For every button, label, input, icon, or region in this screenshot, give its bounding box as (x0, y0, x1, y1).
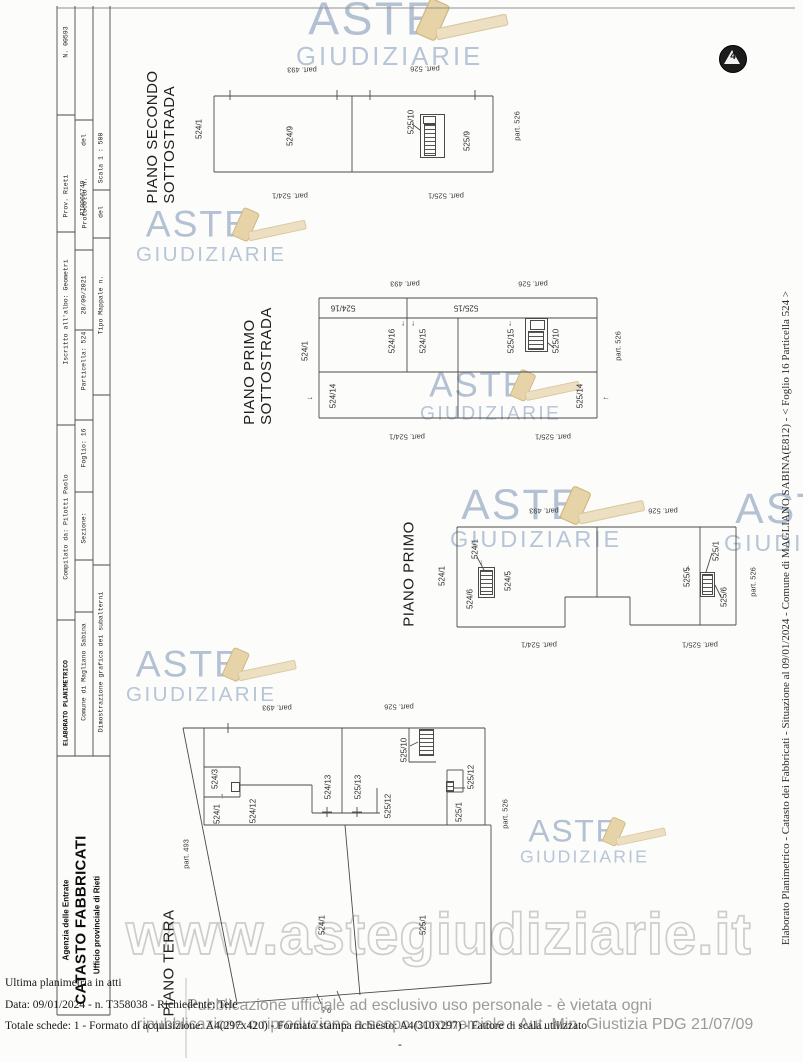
publication-notice-line1: Pubblicazione ufficiale ad esclusivo uso… (187, 997, 652, 1015)
footer-dash: - (398, 1039, 402, 1051)
overlay-layer: 4 Elaborato Planimetrico - Catasto dei F… (0, 0, 803, 1062)
side-annotation: Elaborato Planimetrico - Catasto dei Fab… (780, 291, 792, 945)
footer-line-schede: Totale schede: 1 - Formato di acquisizio… (5, 1020, 587, 1032)
footer-line-ultima: Ultima planimetria in atti (5, 977, 122, 989)
footer-line-data: Data: 09/01/2024 - n. T358038 - Richiede… (5, 999, 238, 1011)
stamp-glyph: 4 (720, 51, 746, 62)
scanned-cadastral-sheet: www.astegiudiziarie.it ASTEGIUDIZIARIEAS… (0, 0, 803, 1062)
round-seal-stamp-icon: 4 (719, 45, 747, 73)
